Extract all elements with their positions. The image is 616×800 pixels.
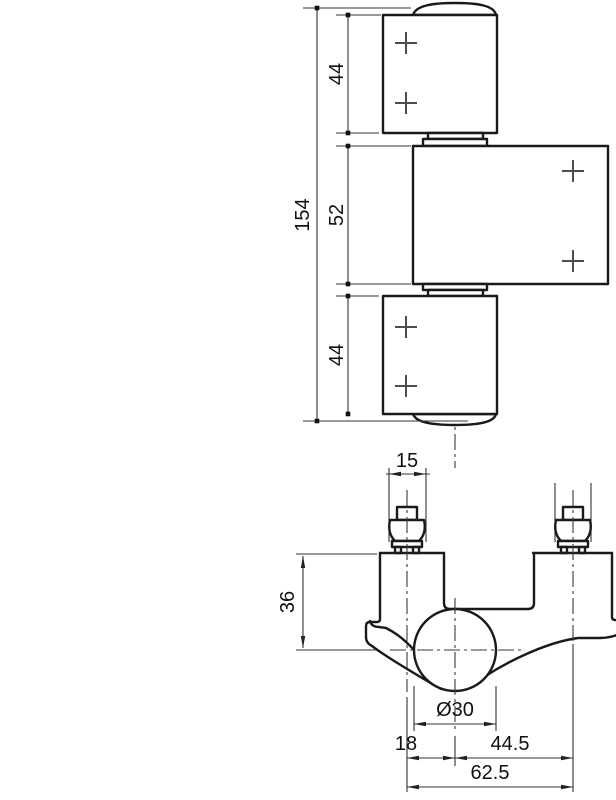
dim-arrow [414,722,426,726]
dim-label-top-knuckle: 44 [326,63,348,85]
front-view: 154 44 52 44 [292,2,608,468]
body-right-profile [484,553,616,677]
dim-label-body-depth: 36 [277,591,299,613]
bracket-body-outline [366,553,616,691]
dim-terminator [346,412,351,417]
dim-label-screw-spacing: 62.5 [471,762,510,784]
dim-arrow [301,636,305,648]
dim-label-overall-height: 154 [292,198,314,231]
bottom-cap [413,414,496,425]
dim-arrow [443,756,455,760]
dim-label-barrel-diameter: Ø30 [436,699,474,721]
bottom-view: 15 36 Ø30 18 44.5 [277,450,616,792]
dim-arrow [407,756,419,760]
dim-label-axis-offset: 18 [395,733,417,755]
top-cap [413,3,496,15]
top-knuckle [383,15,497,133]
dim-terminator [346,294,351,299]
dim-label-axis-to-right-screw: 44.5 [491,733,530,755]
front-part-outline [383,3,608,425]
dim-terminator [346,282,351,287]
dim-label-middle-leaf: 52 [326,204,348,226]
dim-label-bottom-knuckle: 44 [326,344,348,366]
dim-terminator [315,419,320,424]
dim-terminator [315,6,320,11]
dim-arrow [484,722,496,726]
dim-arrow [389,472,401,476]
dim-arrow [455,756,467,760]
body-valley [444,553,534,609]
dim-arrow [414,472,426,476]
hinge-technical-drawing: 154 44 52 44 [0,0,616,800]
dim-label-screw-head-width: 15 [396,450,418,472]
dim-arrow [301,556,305,568]
dim-arrow [561,756,573,760]
dim-terminator [346,13,351,18]
dim-arrow [407,785,419,789]
dim-terminator [346,144,351,149]
dim-terminator [346,131,351,136]
dim-arrow [561,785,573,789]
middle-leaf [413,146,608,284]
technical-drawing-page: 154 44 52 44 [0,0,616,800]
bottom-knuckle [383,296,497,414]
